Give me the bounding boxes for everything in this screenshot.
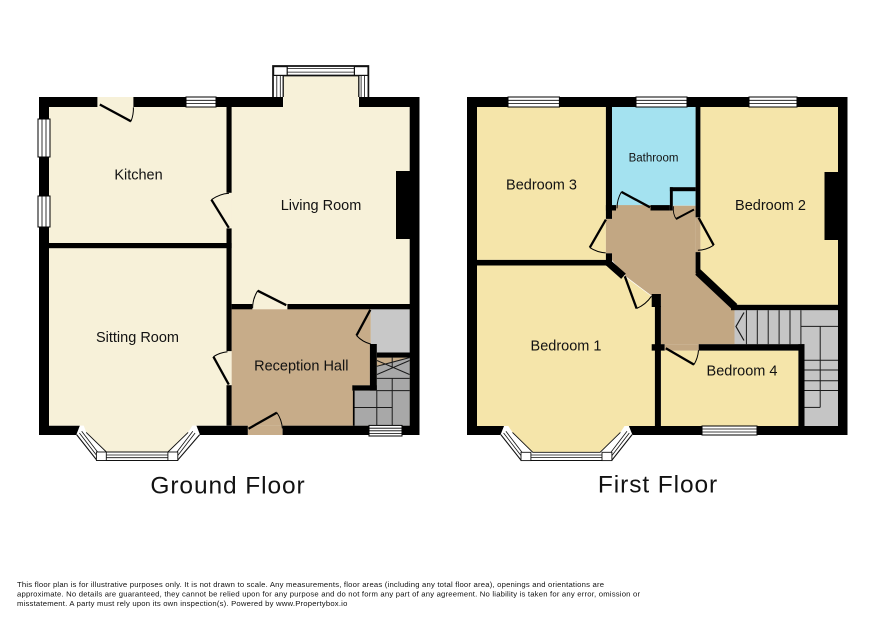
svg-text:Living Room: Living Room — [281, 198, 362, 214]
svg-text:Bedroom 1: Bedroom 1 — [531, 339, 602, 355]
svg-text:Sitting Room: Sitting Room — [96, 330, 179, 346]
svg-text:Bedroom 2: Bedroom 2 — [735, 198, 806, 214]
svg-text:approximate. No details are gu: approximate. No details are guaranteed, … — [17, 590, 640, 599]
svg-text:Reception Hall: Reception Hall — [254, 359, 348, 375]
svg-text:Ground Floor: Ground Floor — [150, 473, 305, 500]
svg-text:Bedroom 3: Bedroom 3 — [506, 177, 577, 193]
svg-text:Kitchen: Kitchen — [114, 167, 162, 183]
svg-text:Bedroom 4: Bedroom 4 — [707, 363, 778, 379]
svg-text:Bathroom: Bathroom — [629, 152, 679, 164]
svg-text:First Floor: First Floor — [598, 472, 718, 499]
svg-text:misstatement. A party must rel: misstatement. A party must rely upon its… — [17, 599, 348, 608]
svg-text:This floor plan is for illustr: This floor plan is for illustrative purp… — [17, 580, 604, 589]
